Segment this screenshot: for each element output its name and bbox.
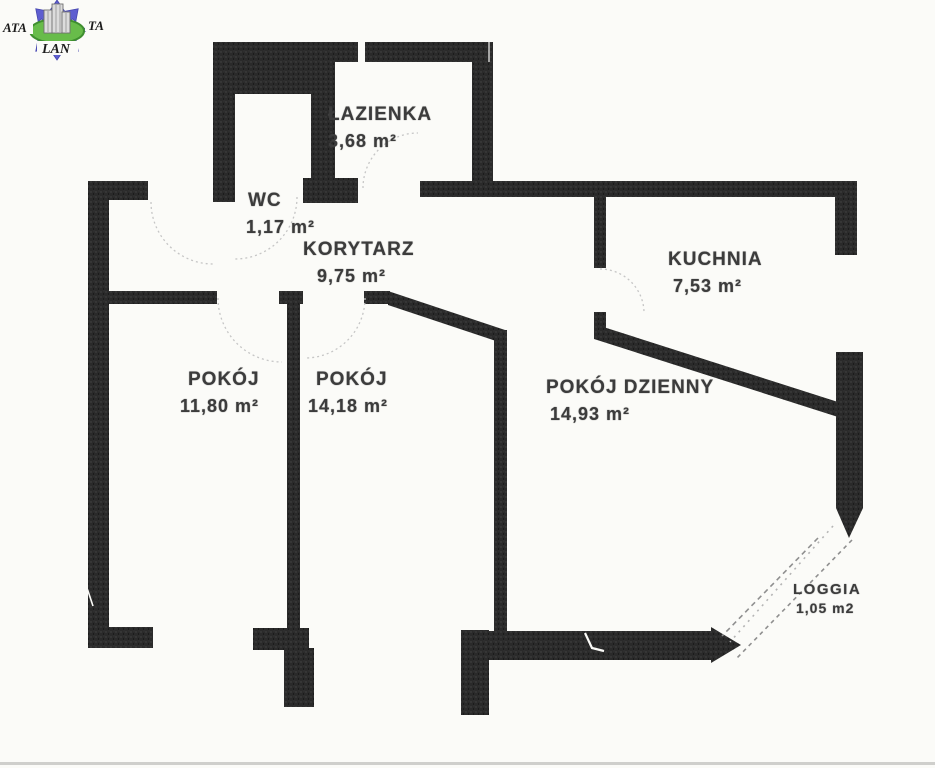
scan-streak-bottom <box>0 762 935 765</box>
logo-text-bottom: LAN <box>41 42 71 57</box>
wall-right-lower <box>836 352 863 508</box>
wall-divider1-block <box>284 648 314 707</box>
agency-logo: ATA TA LAN <box>0 0 110 60</box>
room-area: 14,18 m² <box>308 397 388 416</box>
room-name: KORYTARZ <box>303 240 414 260</box>
wall-pokoj1-top <box>106 291 217 304</box>
room-name: POKÓJ DZIENNY <box>546 378 714 398</box>
wall-kitchen-left <box>594 197 606 268</box>
room-name: KUCHNIA <box>668 250 763 270</box>
room-name: WC <box>248 191 315 211</box>
logo-text-left: ATA <box>2 20 27 35</box>
room-area: 14,93 m² <box>550 405 714 424</box>
room-name: LOGGIA <box>793 582 861 598</box>
room-area: 3,68 m² <box>328 132 432 151</box>
wall-divider1-foot <box>253 628 309 650</box>
room-name: POKÓJ <box>188 370 260 390</box>
floor-plan-page: ATA TA LAN ŁAZIENKA 3,68 m² WC 1,17 m² K… <box>0 0 935 768</box>
door-arc-pokoj2 <box>305 298 365 358</box>
wall-bottom-left <box>88 627 153 648</box>
room-area: 7,53 m² <box>673 277 763 296</box>
wall-divider1 <box>287 292 300 630</box>
wall-corridor-stub <box>364 291 390 304</box>
room-name: POKÓJ <box>316 370 388 390</box>
room-label-wc: WC 1,17 m² <box>248 191 315 237</box>
room-label-pokoj-2: POKÓJ 14,18 m² <box>316 370 388 416</box>
room-label-pokoj-1: POKÓJ 11,80 m² <box>188 370 260 416</box>
wall-bath-right <box>472 58 493 184</box>
logo-buildings <box>44 4 70 33</box>
room-label-kuchnia: KUCHNIA 7,53 m² <box>668 250 763 296</box>
wall-above-wc <box>230 58 313 94</box>
room-area: 11,80 m² <box>180 397 260 416</box>
wall-right-arrow <box>836 508 863 538</box>
room-label-lazienka: ŁAZIENKA 3,68 m² <box>328 105 432 151</box>
room-area: 1,05 m2 <box>796 601 861 616</box>
floor-plan-drawing: ATA TA LAN <box>0 0 935 768</box>
wall-left-outer <box>88 181 109 648</box>
room-area: 1,17 m² <box>246 218 315 237</box>
door-arc-entrance <box>151 202 213 264</box>
wall-right-upper <box>835 197 857 255</box>
wall-divider2 <box>494 330 507 632</box>
wall-top-long <box>420 181 857 197</box>
wall-corridor-diagonal <box>388 291 505 344</box>
room-label-loggia: LOGGIA 1,05 m2 <box>793 582 861 615</box>
wall-bottom-arrow <box>711 627 741 663</box>
room-area: 9,75 m² <box>317 267 414 286</box>
wall-bottom-living <box>489 631 711 660</box>
door-arc-kitchen <box>600 269 644 313</box>
door-arc-pokoj1 <box>218 298 282 362</box>
wall-divider2-block <box>461 630 489 715</box>
room-label-pokoj-dzienny: POKÓJ DZIENNY 14,93 m² <box>546 378 714 424</box>
room-label-korytarz: KORYTARZ 9,75 m² <box>303 240 414 286</box>
room-name: ŁAZIENKA <box>328 105 432 125</box>
logo-text-right: TA <box>88 18 104 33</box>
